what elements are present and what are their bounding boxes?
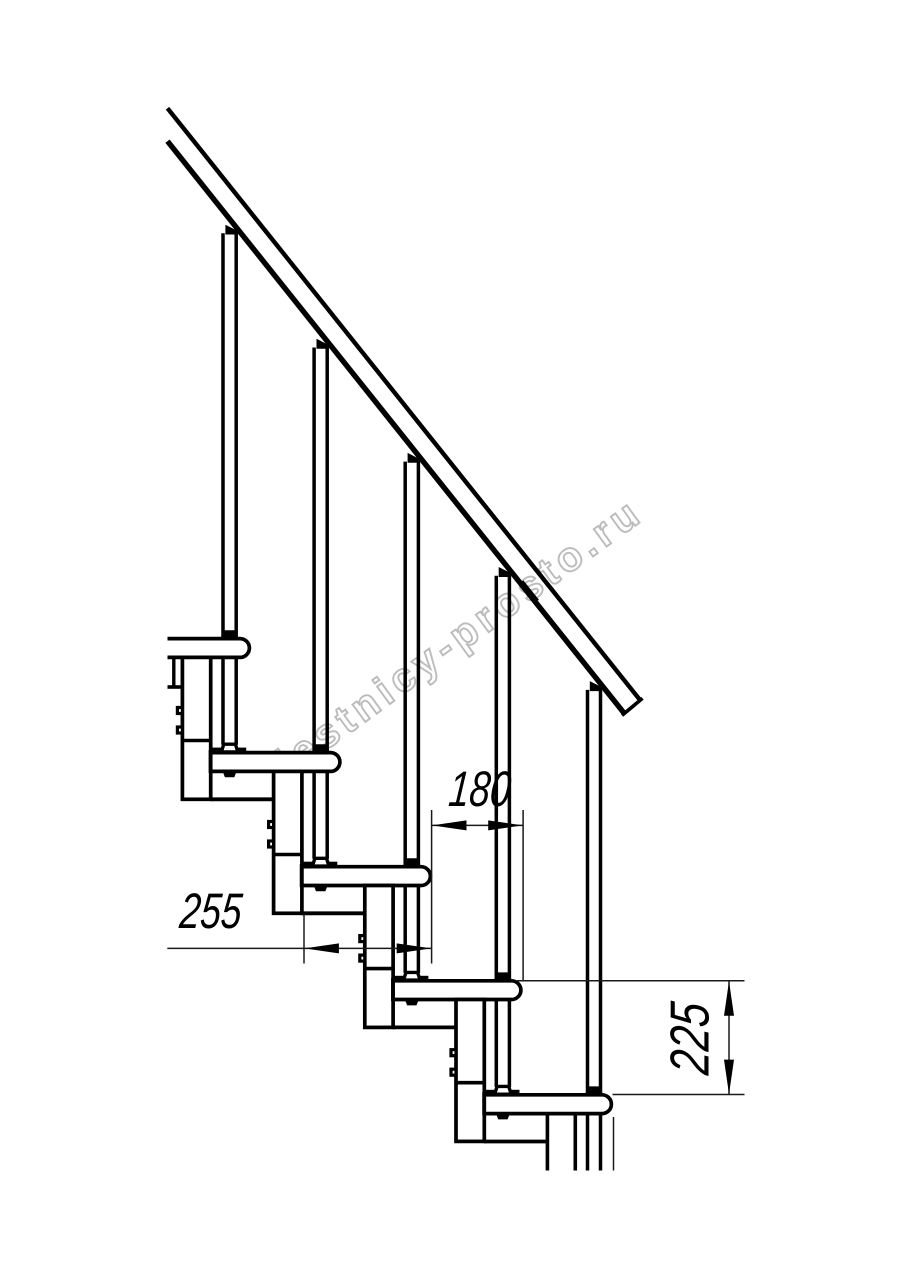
svg-text:225: 225 [660, 999, 721, 1078]
svg-text:180: 180 [447, 762, 514, 818]
svg-text:255: 255 [177, 884, 245, 940]
